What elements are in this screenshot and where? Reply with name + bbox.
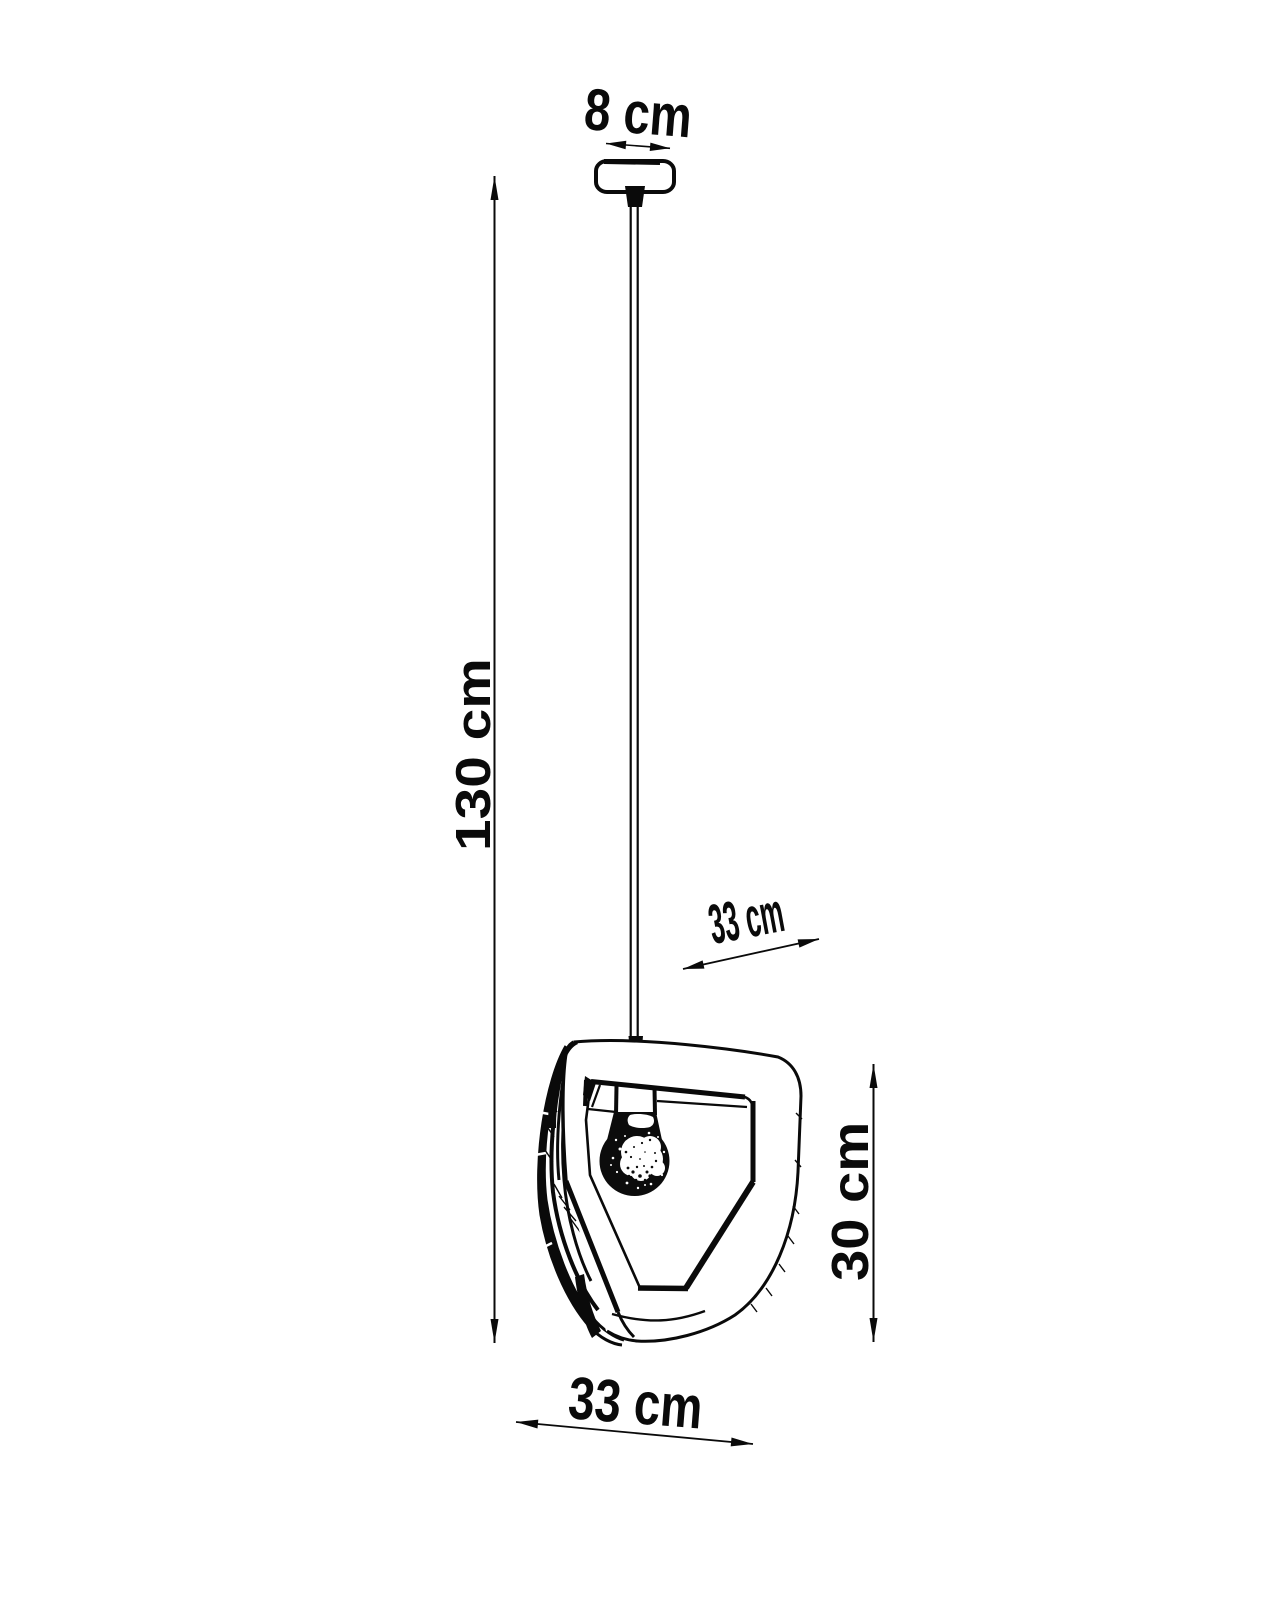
svg-text:30 cm: 30 cm bbox=[822, 1122, 880, 1281]
svg-text:33 cm: 33 cm bbox=[566, 1365, 705, 1442]
svg-text:8 cm: 8 cm bbox=[582, 77, 694, 150]
svg-text:33 cm: 33 cm bbox=[704, 881, 789, 956]
svg-text:130 cm: 130 cm bbox=[447, 658, 501, 851]
